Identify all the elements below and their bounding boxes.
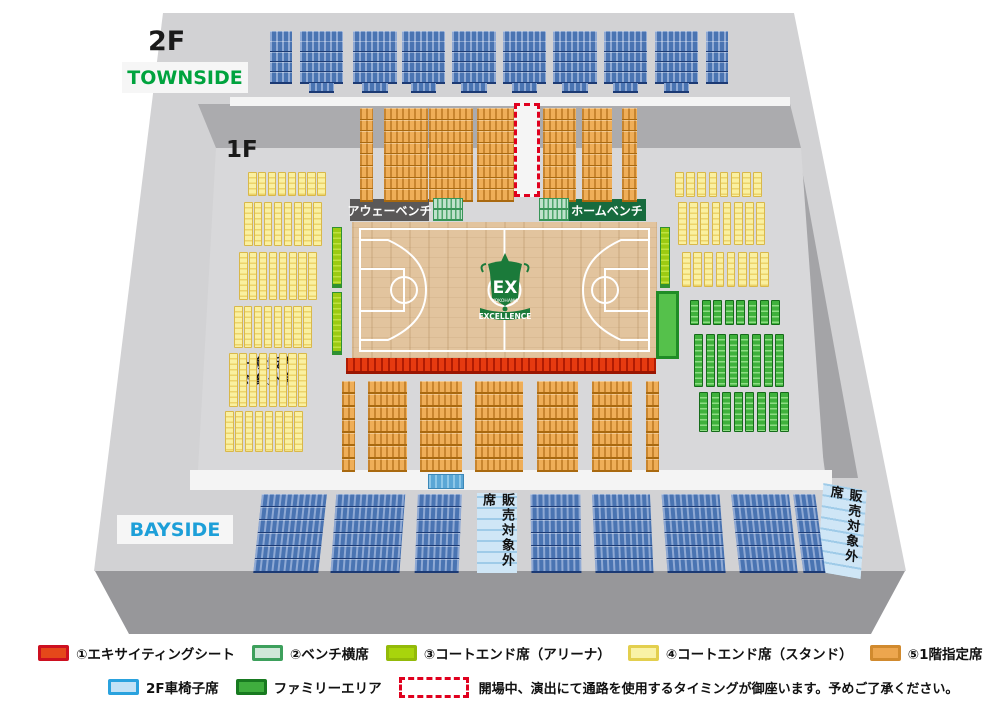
seat-row [646, 433, 659, 446]
seat-row [258, 520, 324, 534]
seat-strip-family-area [748, 300, 757, 325]
team-logo: EX YOKOHAMA EXCELLENCE [474, 252, 536, 328]
seat-strip-family-area [690, 300, 699, 325]
seat-strip-courtend-stand-left [269, 252, 278, 300]
seat-strip-courtend-stand-left [259, 353, 268, 407]
seat-row [593, 520, 652, 534]
seat-strip-courtend-stand-right [700, 202, 709, 245]
seat-row [735, 533, 794, 547]
seat-row [420, 394, 462, 407]
seat-strip-courtend-stand-left [255, 411, 264, 452]
seat-row [592, 407, 632, 420]
seat-row [537, 433, 578, 446]
seat-strip-courtend-stand-right [689, 202, 698, 245]
bayside-label: BAYSIDE [130, 519, 221, 541]
seat-strip-courtend-stand-left [313, 202, 322, 246]
excluded-block-center: 販売対象外席 [477, 493, 517, 573]
bayside-band: BAYSIDE [117, 515, 233, 544]
logo-yokohama-text: YOKOHAMA [491, 298, 519, 304]
legend-swatch [252, 645, 283, 661]
seat-strip-courtend-stand-left [258, 172, 267, 196]
seat-strip-courtend-stand-right [709, 172, 718, 197]
seat-strip-courtend-stand-right [675, 172, 684, 197]
seat-strip-courtend-stand-left [279, 353, 288, 407]
seat-strip-courtend-stand-right [742, 172, 751, 197]
seat-group-2f-free-top [270, 31, 292, 95]
logo-excellence-text: EXCELLENCE [479, 312, 532, 321]
seat-row [531, 507, 581, 521]
seat-strip-courtend-stand-left [248, 172, 257, 196]
seat-group-1f-reserved-bottom [646, 381, 659, 484]
seat-row [737, 546, 796, 560]
seat-strip-courtend-stand-left [288, 353, 297, 407]
seat-strip-courtend-stand-right [682, 252, 691, 287]
legend-label: ⑤1階指定席 [908, 643, 983, 663]
seat-strip-family-area [752, 334, 761, 387]
seat-group-2f-free-bottom [731, 494, 799, 584]
seat-group-2f-free-top [300, 31, 343, 95]
seat-strip-courtend-stand-right [704, 252, 713, 287]
legend-item: 2F車椅子席 [108, 677, 219, 697]
seat-strip-courtend-arena [332, 292, 342, 355]
seat-row [593, 507, 652, 521]
seat-strip-courtend-stand-left [235, 411, 244, 452]
seat-row [334, 507, 404, 521]
legend-item: ⑤1階指定席 [870, 643, 983, 663]
legend-swatch [386, 645, 417, 661]
seat-row [537, 446, 578, 459]
seat-row [342, 420, 355, 433]
legend: ①エキサイティングシート②ベンチ横席③コートエンド席（アリーナ）④コートエンド席… [0, 636, 1000, 704]
seat-row [420, 420, 462, 433]
seat-group-2f-free-bottom [414, 494, 462, 584]
legend-swatch [628, 645, 659, 661]
seat-row [475, 394, 523, 407]
seat-row [594, 533, 653, 547]
seat-row [416, 533, 461, 547]
seat-group-2f-free-top [503, 31, 546, 95]
seat-row [537, 459, 578, 472]
seat-strip-courtend-stand-right [723, 202, 732, 245]
walkway-top [230, 97, 790, 106]
seat-row [360, 189, 373, 202]
seat-strip-courtend-stand-left [293, 306, 302, 348]
seat-strip-family-area [717, 334, 726, 387]
seat-row [342, 459, 355, 472]
seat-row [537, 381, 578, 394]
seat-strip-courtend-stand-right [731, 172, 740, 197]
seat-row-short [562, 83, 588, 94]
legend-item: ファミリーエリア [236, 677, 382, 697]
seat-row [582, 189, 612, 202]
seat-row [796, 520, 820, 534]
seat-row-short [411, 83, 437, 94]
seat-group-2f-free-bottom [592, 494, 654, 584]
seat-strip-family-area [713, 300, 722, 325]
seat-strip-family-area [734, 392, 743, 432]
seat-row [335, 494, 405, 508]
seat-strip-courtend-stand-right [716, 252, 725, 287]
seat-row [531, 546, 581, 560]
seat-strip-courtend-stand-left [303, 202, 312, 246]
seat-strip-exciting [346, 358, 656, 374]
seat-row [594, 546, 653, 560]
seat-row [368, 459, 407, 472]
seat-row [368, 407, 407, 420]
seat-strip-courtend-stand-left [244, 306, 253, 348]
seat-strip-courtend-stand-left [269, 353, 278, 407]
logo-ex-text: EX [493, 278, 518, 298]
legend-corridor-swatch [399, 677, 469, 698]
seat-strip-courtend-arena [660, 227, 670, 288]
seat-row [415, 546, 460, 560]
seat-strip-courtend-stand-left [289, 252, 298, 300]
legend-label: 2F車椅子席 [146, 677, 219, 697]
seat-row [342, 446, 355, 459]
seat-row [415, 559, 460, 573]
seat-row [646, 394, 659, 407]
seat-row [531, 559, 581, 573]
seat-row [537, 407, 578, 420]
legend-label: ④コートエンド席（スタンド） [666, 643, 853, 663]
seat-strip-family-area [729, 334, 738, 387]
seat-row [368, 381, 407, 394]
legend-row-1: ①エキサイティングシート②ベンチ横席③コートエンド席（アリーナ）④コートエンド席… [0, 636, 1000, 670]
seat-row-short [461, 83, 487, 94]
legend-corridor-note: 開場中、演出にて通路を使用するタイミングが御座います。予めご了承ください。 [479, 678, 959, 697]
seat-group-2f-free-top [452, 31, 496, 95]
legend-item: ③コートエンド席（アリーナ） [386, 643, 611, 663]
seat-strip-courtend-stand-left [303, 306, 312, 348]
seat-row [592, 381, 632, 394]
seat-row [368, 446, 407, 459]
seat-strip-courtend-stand-left [274, 202, 283, 246]
seat-group-1f-reserved-bottom [368, 381, 407, 484]
seat-row [259, 507, 325, 521]
seat-row [368, 394, 407, 407]
seat-row [667, 559, 726, 573]
seat-row [592, 494, 651, 508]
seat-strip-family-area [764, 334, 773, 387]
seat-row [475, 446, 523, 459]
seat-row [592, 459, 632, 472]
excluded-block-right: 販売対象外席 [817, 483, 867, 579]
seat-group-1f-reserved-bottom [342, 381, 355, 484]
seat-group-1f-reserved-bottom [592, 381, 632, 484]
seat-strip-courtend-stand-right [738, 252, 747, 287]
seat-strip-courtend-stand-left [298, 252, 307, 300]
seat-row [420, 381, 462, 394]
seat-group-1f-reserved-bottom [475, 381, 523, 484]
seat-strip-family-area [725, 300, 734, 325]
seat-row [420, 433, 462, 446]
seat-row [666, 546, 725, 560]
seat-group-2f-free-bottom [530, 494, 581, 584]
seat-row [662, 494, 721, 508]
seat-strip-courtend-stand-left [249, 252, 258, 300]
seat-strip-courtend-stand-left [284, 202, 293, 246]
seat-strip-courtend-stand-left [244, 202, 253, 246]
seat-row [738, 559, 797, 573]
family-area-block [656, 291, 679, 359]
legend-item: ④コートエンド席（スタンド） [628, 643, 853, 663]
seat-strip-courtend-stand-right [745, 202, 754, 245]
seat-row [475, 459, 523, 472]
seat-group-2f-free-bottom [252, 494, 327, 584]
seat-strip-family-area [760, 300, 769, 325]
legend-row-2: 2F車椅子席ファミリーエリア開場中、演出にて通路を使用するタイミングが御座います… [0, 670, 1000, 704]
legend-label: ファミリーエリア [274, 677, 382, 697]
seat-row [256, 533, 322, 547]
seat-row [592, 420, 632, 433]
seat-row [416, 520, 461, 534]
seat-group-1f-reserved-top [622, 108, 637, 213]
seat-row [663, 507, 722, 521]
seat-strip-courtend-stand-left [225, 411, 234, 452]
seat-block-wheelchair [428, 474, 464, 489]
seat-row [646, 407, 659, 420]
seat-row [270, 72, 292, 84]
seat-row [420, 459, 462, 472]
seat-strip-courtend-stand-left [298, 353, 307, 407]
seat-row [368, 433, 407, 446]
seat-row [531, 520, 581, 534]
seat-strip-courtend-stand-right [753, 172, 762, 197]
seat-strip-courtend-stand-left [259, 252, 268, 300]
seat-strip-courtend-stand-left [264, 202, 273, 246]
seat-row [646, 420, 659, 433]
seat-row [342, 381, 355, 394]
seat-row [800, 546, 824, 560]
seat-strip-family-area [780, 392, 789, 432]
seat-row [342, 394, 355, 407]
seat-strip-courtend-stand-left [284, 411, 293, 452]
seat-row [664, 520, 723, 534]
seat-group-1f-reserved-bottom [537, 381, 578, 484]
seat-row-short [664, 83, 690, 94]
seat-row [477, 189, 514, 202]
floor-1f-label: 1F [226, 137, 258, 163]
seat-row-short [362, 83, 388, 94]
basketball-court: EX YOKOHAMA EXCELLENCE [352, 222, 657, 358]
seat-row [646, 381, 659, 394]
seat-strip-courtend-arena [332, 227, 342, 288]
legend-label: ②ベンチ横席 [290, 643, 369, 663]
seat-strip-courtend-stand-right [697, 172, 706, 197]
seat-strip-courtend-stand-right [734, 202, 743, 245]
seat-strip-courtend-stand-left [275, 411, 284, 452]
seat-row [260, 494, 326, 508]
seat-row [331, 559, 401, 573]
legend-item: ①エキサイティングシート [38, 643, 235, 663]
seat-strip-family-area [769, 392, 778, 432]
seat-strip-courtend-stand-left [249, 353, 258, 407]
seat-row [417, 494, 462, 508]
seat-row [368, 420, 407, 433]
seat-row [646, 459, 659, 472]
seat-strip-family-area [699, 392, 708, 432]
seat-group-2f-free-top [553, 31, 597, 95]
seat-strip-family-area [740, 334, 749, 387]
seat-row [795, 507, 819, 521]
seat-strip-family-area [706, 334, 715, 387]
seat-row [475, 381, 523, 394]
seat-row [665, 533, 724, 547]
seat-strip-courtend-stand-left [229, 353, 238, 407]
seat-group-2f-free-bottom [662, 494, 727, 584]
seat-group-1f-reserved-top [360, 108, 373, 213]
seat-row [793, 494, 817, 508]
seat-strip-courtend-stand-right [686, 172, 695, 197]
seat-row [253, 559, 319, 573]
seat-strip-family-area [745, 392, 754, 432]
legend-swatch [236, 679, 267, 695]
floor-2f-label: 2F [148, 26, 185, 57]
seat-strip-family-area [722, 392, 731, 432]
seat-block-bench-side [433, 209, 463, 221]
seat-strip-courtend-stand-left [264, 306, 273, 348]
seat-strip-courtend-stand-left [284, 306, 293, 348]
seat-strip-family-area [702, 300, 711, 325]
townside-band: TOWNSIDE [122, 62, 248, 93]
seat-group-2f-free-top [402, 31, 445, 95]
seat-strip-courtend-stand-left [239, 353, 248, 407]
seat-row [734, 520, 793, 534]
excluded-label-right: 販売対象外席 [820, 484, 864, 579]
seat-strip-courtend-stand-left [254, 202, 263, 246]
seat-strip-courtend-stand-right [720, 172, 729, 197]
seat-block-bench-side [539, 209, 569, 221]
legend-swatch [108, 679, 139, 695]
seat-row [530, 494, 580, 508]
seat-group-1f-reserved-top [477, 108, 514, 213]
seat-strip-courtend-stand-left [245, 411, 254, 452]
seat-row [592, 394, 632, 407]
seat-group-2f-free-top [353, 31, 397, 95]
seat-strip-courtend-stand-right [678, 202, 687, 245]
seat-group-1f-reserved-top [384, 108, 428, 213]
legend-label: ③コートエンド席（アリーナ） [424, 643, 611, 663]
legend-label: ①エキサイティングシート [76, 643, 235, 663]
seat-row [537, 394, 578, 407]
seat-row-short [613, 83, 639, 94]
seat-strip-family-area [757, 392, 766, 432]
seat-strip-courtend-stand-left [308, 252, 317, 300]
seat-strip-courtend-stand-left [294, 202, 303, 246]
seat-row [255, 546, 321, 560]
seat-row [384, 189, 428, 202]
seat-strip-courtend-stand-left [254, 306, 263, 348]
seat-row [592, 446, 632, 459]
seat-group-2f-free-top [604, 31, 647, 95]
seat-row [531, 533, 581, 547]
seat-row-short [512, 83, 538, 94]
seat-strip-courtend-stand-left [307, 172, 316, 196]
seat-row [646, 446, 659, 459]
seat-row [622, 189, 637, 202]
seat-row [475, 433, 523, 446]
seat-strip-courtend-stand-right [749, 252, 758, 287]
legend-swatch [38, 645, 69, 661]
seat-strip-courtend-stand-left [294, 411, 303, 452]
seat-strip-courtend-stand-right [727, 252, 736, 287]
seat-strip-courtend-stand-left [279, 252, 288, 300]
corridor-dashed-zone [514, 103, 540, 197]
seat-strip-family-area [711, 392, 720, 432]
seat-strip-courtend-stand-left [288, 172, 297, 196]
seat-group-1f-reserved-top [582, 108, 612, 213]
seat-strip-courtend-stand-left [298, 172, 307, 196]
seat-strip-courtend-stand-left [234, 306, 243, 348]
seat-strip-courtend-stand-right [693, 252, 702, 287]
seat-strip-family-area [775, 334, 784, 387]
seat-strip-courtend-stand-right [756, 202, 765, 245]
seat-row [595, 559, 654, 573]
seat-row [732, 507, 791, 521]
seat-strip-courtend-stand-left [239, 252, 248, 300]
seat-strip-courtend-stand-left [268, 172, 277, 196]
seat-strip-courtend-stand-left [265, 411, 274, 452]
seat-group-2f-free-top [655, 31, 698, 95]
seat-row [342, 407, 355, 420]
seat-strip-courtend-stand-right [712, 202, 721, 245]
seat-strip-courtend-stand-left [317, 172, 326, 196]
seat-strip-courtend-stand-left [274, 306, 283, 348]
seat-strip-courtend-stand-right [760, 252, 769, 287]
seat-row [798, 533, 822, 547]
seat-row [802, 559, 826, 573]
seat-row [342, 433, 355, 446]
seat-group-2f-free-top [706, 31, 728, 95]
seat-group-2f-free-bottom [330, 494, 406, 584]
legend-swatch [870, 645, 901, 661]
seat-row [417, 507, 462, 521]
seat-row [420, 446, 462, 459]
seat-strip-family-area [771, 300, 780, 325]
seat-row [731, 494, 790, 508]
seat-row [475, 420, 523, 433]
townside-label: TOWNSIDE [127, 67, 242, 89]
seat-group-1f-reserved-bottom [420, 381, 462, 484]
seat-row [592, 433, 632, 446]
seat-row [333, 520, 403, 534]
seat-strip-family-area [694, 334, 703, 387]
seat-row [475, 407, 523, 420]
seat-row [331, 546, 401, 560]
excluded-label-center: 販売対象外席 [478, 493, 516, 573]
legend-item: ②ベンチ横席 [252, 643, 369, 663]
seat-row [706, 72, 728, 84]
seat-row [537, 420, 578, 433]
arena-seating-map: 2F TOWNSIDE 1F BAYSIDE [0, 0, 1000, 707]
seat-strip-family-area [736, 300, 745, 325]
seat-row-short [309, 83, 335, 94]
seat-row [420, 407, 462, 420]
seat-row [332, 533, 402, 547]
seat-strip-courtend-stand-left [278, 172, 287, 196]
